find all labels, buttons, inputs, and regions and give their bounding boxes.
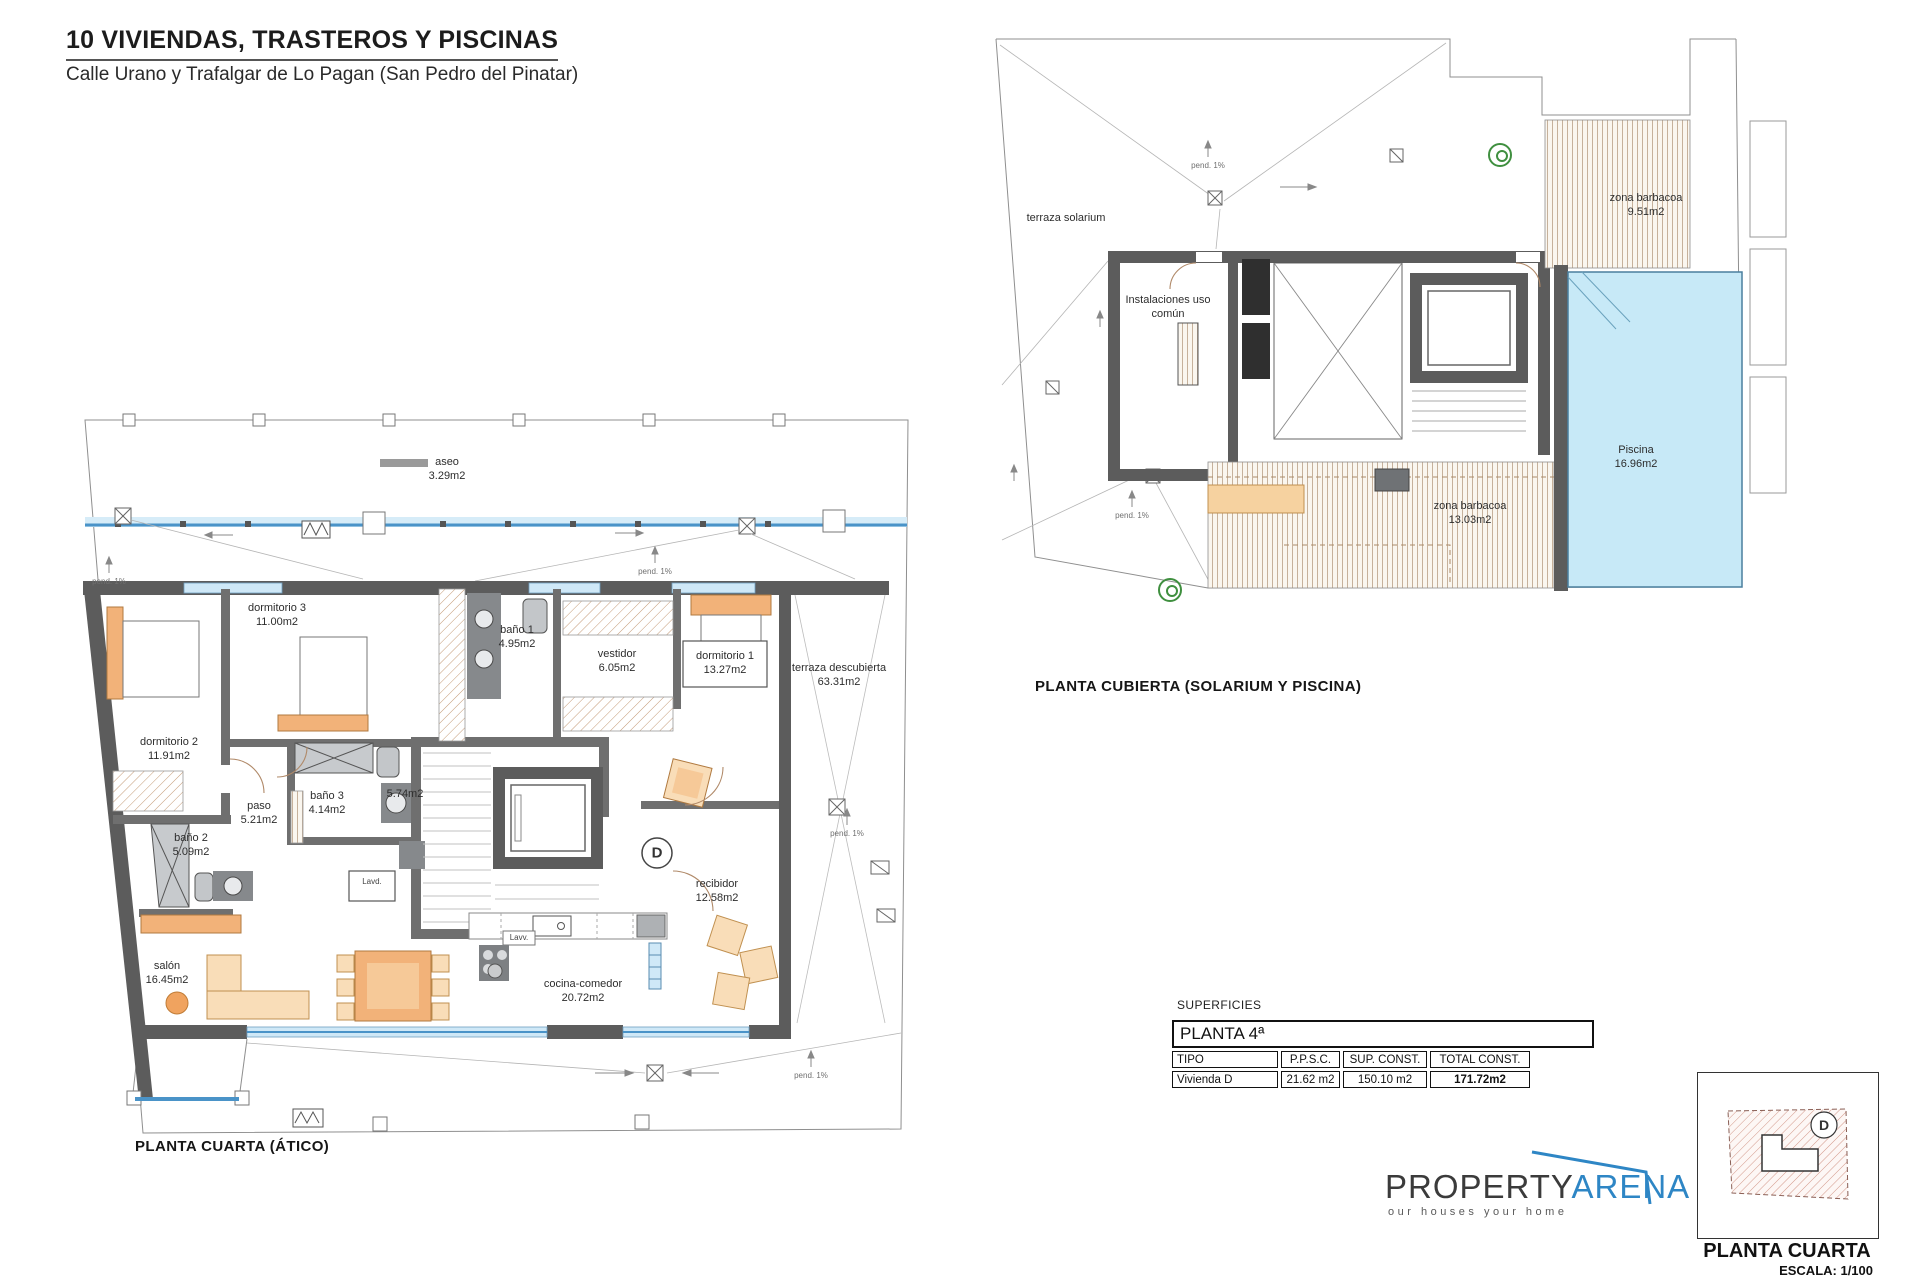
slope-note: pend. 1%	[1115, 511, 1149, 520]
slope-note: pend. 1%	[830, 829, 864, 838]
room-label-dormitorio-1: dormitorio 113.27m2	[696, 649, 754, 678]
floorplan-cubierta-drawing	[980, 25, 1810, 715]
room-label-dormitorio-3: dormitorio 311.00m2	[248, 601, 306, 630]
surfaces-floor-header: PLANTA 4ª	[1172, 1020, 1594, 1048]
washer-label: Lavd.	[362, 877, 382, 886]
page-title: 10 VIVIENDAS, TRASTEROS Y PISCINAS	[66, 26, 558, 61]
logo-text-arena: ARENA	[1572, 1168, 1691, 1205]
room-label-aseo: aseo3.29m2	[429, 455, 466, 484]
unit-letter-d: D	[652, 845, 663, 862]
slope-note: pend. 1%	[1191, 161, 1225, 170]
room-label-piscina: Piscina16.96m2	[1615, 443, 1658, 472]
room-label-terraza-descubierta: terraza descubierta63.31m2	[792, 661, 886, 690]
room-label-terraza-solarium: terraza solarium	[1027, 211, 1106, 225]
key-plan-scale: ESCALA: 1/100	[1697, 1263, 1873, 1278]
bottom-terrace	[127, 1033, 901, 1131]
room-label-paso: paso5.21m2	[241, 799, 278, 828]
room-label-vestidor: vestidor6.05m2	[598, 647, 637, 676]
cell-ppsc: 21.62 m2	[1281, 1071, 1340, 1088]
aseo-fixture	[380, 459, 428, 467]
cell-sup-const: 150.10 m2	[1343, 1071, 1427, 1088]
surfaces-header-row: TIPO P.P.S.C. SUP. CONST. TOTAL CONST.	[1172, 1051, 1530, 1068]
room-label-bano-2: baño 25.09m2	[173, 831, 210, 860]
roof-structure	[1108, 251, 1550, 481]
room-label-zona-barbacoa-9: zona barbacoa9.51m2	[1610, 191, 1683, 220]
room-label-instalaciones: Instalaciones uso común	[1122, 293, 1214, 322]
room-label-dormitorio-2: dormitorio 211.91m2	[140, 735, 198, 764]
neighbor-terraces	[1750, 121, 1786, 493]
room-label-escalera: 5.74m2	[387, 787, 424, 801]
cell-total-const: 171.72m2	[1430, 1071, 1530, 1088]
caption-planta-cubierta: PLANTA CUBIERTA (SOLARIUM Y PISCINA)	[1035, 678, 1361, 695]
page-subtitle: Calle Urano y Trafalgar de Lo Pagan (San…	[66, 64, 578, 86]
floorplan-planta-cubierta: terraza solarium Instalaciones uso común…	[980, 25, 1810, 715]
logo-tagline: our houses your home	[1388, 1206, 1567, 1218]
cell-tipo: Vivienda D	[1172, 1071, 1278, 1088]
room-label-salon: salón16.45m2	[146, 959, 189, 988]
col-header-ppsc: P.P.S.C.	[1281, 1051, 1340, 1068]
slope-note: pend. 1%	[92, 577, 126, 586]
room-label-recibidor: recibidor12.58m2	[696, 877, 739, 906]
slope-note: pend. 1%	[638, 567, 672, 576]
col-header-total-const: TOTAL CONST.	[1430, 1051, 1530, 1068]
caption-planta-cuarta-atico: PLANTA CUARTA (ÁTICO)	[135, 1138, 329, 1155]
logo-text-property: PROPERTY	[1385, 1168, 1572, 1205]
top-terrace	[85, 414, 907, 581]
pool	[1554, 265, 1742, 591]
key-plan-caption: PLANTA CUARTA	[1697, 1240, 1877, 1263]
floorplan-atico-drawing	[55, 375, 925, 1175]
room-label-cocina-comedor: cocina-comedor20.72m2	[544, 977, 622, 1006]
col-header-tipo: TIPO	[1172, 1051, 1278, 1068]
vent-box-icon	[302, 521, 330, 538]
key-plan-unit-letter: D	[1819, 1117, 1829, 1133]
slope-arrows	[106, 530, 658, 573]
room-label-zona-barbacoa-13: zona barbacoa13.03m2	[1434, 499, 1507, 528]
terraza-descubierta	[795, 595, 895, 1023]
dishwasher-label: Lavv.	[510, 933, 529, 942]
elevator-overrun	[1410, 273, 1528, 383]
surfaces-data-row: Vivienda D 21.62 m2 150.10 m2 171.72m2	[1172, 1071, 1530, 1088]
slope-note: pend. 1%	[794, 1071, 828, 1080]
key-plan-box: D	[1697, 1072, 1879, 1239]
room-label-bano-3: baño 34.14m2	[309, 789, 346, 818]
surfaces-section-label: SUPERFICIES	[1177, 998, 1261, 1012]
col-header-sup-const: SUP. CONST.	[1343, 1051, 1427, 1068]
room-label-bano-1: baño 14.95m2	[499, 623, 536, 652]
stair-core	[423, 753, 603, 922]
logo-wordmark: PROPERTYARENA	[1385, 1168, 1690, 1206]
plan-sheet: 10 VIVIENDAS, TRASTEROS Y PISCINAS Calle…	[0, 0, 1920, 1280]
key-plan-drawing	[1698, 1073, 1875, 1235]
floorplan-planta-cuarta: aseo3.29m2 dormitorio 311.00m2 baño 14.9…	[55, 375, 925, 1175]
elevator	[493, 767, 603, 869]
